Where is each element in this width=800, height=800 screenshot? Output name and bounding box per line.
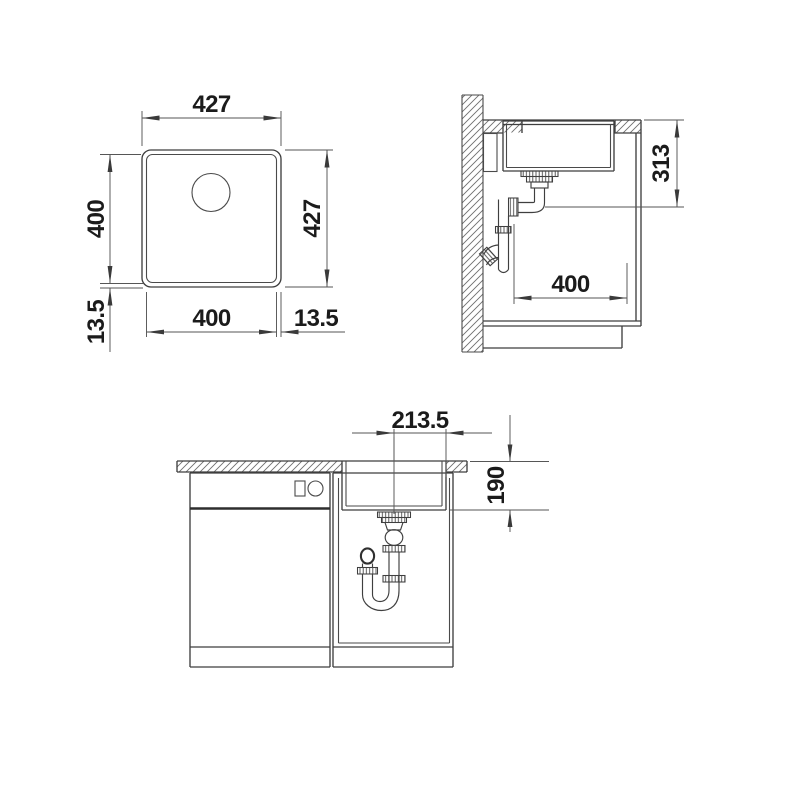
arrowhead-up [675,120,680,138]
dishwasher-cabinet [190,473,330,667]
arrowhead-up [325,150,330,168]
union-nut-outlet [358,568,378,575]
arrowhead-left [514,296,532,301]
dim-label-side-depth: 400 [551,271,589,298]
arrowhead-down [108,266,113,284]
arrowhead-down [325,270,330,288]
downpipe [389,552,399,591]
vertical-pipe [499,200,509,273]
arrowhead-down [675,190,680,208]
drain-taper [385,523,403,531]
dim-label-plan-right: 427 [299,199,326,237]
side-view: 313 400 [462,95,684,352]
dim-label-plan-top: 427 [192,91,230,118]
ball-joint [385,530,403,546]
control-button [295,481,305,496]
outlet-pipe-end [361,548,374,563]
union-nut-1 [509,198,519,216]
union-nut-upper [383,546,405,553]
dim-plan-top: 427 [142,91,281,146]
counter-hatch-left [178,462,343,472]
arrowhead-left [147,330,165,335]
drain-flange-top [378,512,411,518]
dim-label-plan-bottom: 400 [192,305,230,332]
counter-hatch-right [446,462,467,472]
arrowhead-up [108,155,113,173]
dim-plan-right: 427 [285,150,333,287]
sink-base-cabinet [333,473,453,667]
union-nut-lower [383,576,405,583]
arrowhead-up [508,510,513,527]
front-view: 213.5 190 [177,407,549,667]
arrowhead-left [142,116,160,121]
dim-label-plan-left: 400 [83,200,110,238]
wall-hatch [462,95,483,352]
plan-view: 427 427 400 13.5 400 13. [83,91,345,352]
back-panel [484,134,498,172]
wall-section [462,95,483,352]
dim-plan-left: 400 13.5 [83,155,143,353]
union-ring [496,227,512,234]
dim-label-plan-left-rim: 13.5 [83,300,110,345]
dim-side-depth: 400 [514,224,627,304]
drain-flange-mid [527,177,553,183]
control-knob [308,481,323,496]
dim-front-half-width: 213.5 [352,407,492,477]
sink-dimension-diagram: 427 427 400 13.5 400 13. [0,0,800,800]
dim-label-front-depth: 190 [483,466,510,504]
dim-label-front-half-width: 213.5 [391,407,448,434]
drain-flange-mid [382,518,407,523]
cabinet-outline [333,473,453,667]
arrowhead-right [259,330,277,335]
dim-plan-bottom: 400 13.5 [147,292,346,337]
tailpipe-elbow [518,188,545,213]
drain-assembly-side [479,171,558,273]
arrowhead-inward-left [446,431,464,436]
drain-hole [192,174,230,212]
technical-drawing-page: 427 427 400 13.5 400 13. [0,0,800,800]
arrowhead-right [264,116,282,121]
dim-label-plan-bottom-rim: 13.5 [294,305,339,332]
drain-flange-body [531,182,548,188]
arrowhead-right [610,296,628,301]
arrowhead-down [508,445,513,462]
drain-assembly-front [358,512,411,611]
sink-outer-rim [142,150,281,287]
dim-label-side-height: 313 [648,144,675,182]
countertop-front [177,461,467,472]
extension-lines [394,429,446,477]
cabinet-outline [190,473,330,667]
counter-hatch-right [615,121,641,133]
drain-flange-top [521,171,558,177]
